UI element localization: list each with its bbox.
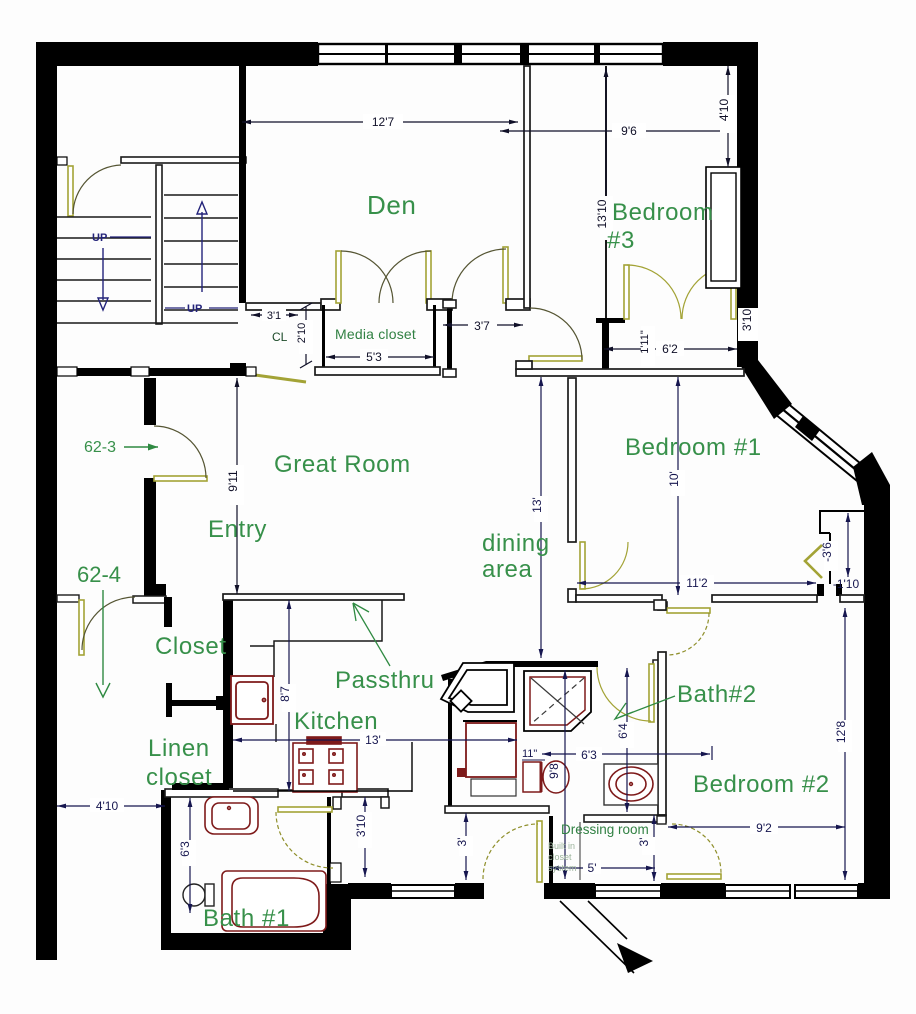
svg-text:12'8: 12'8 — [834, 721, 848, 744]
svg-text:10': 10' — [667, 471, 681, 487]
svg-text:Den: Den — [367, 190, 417, 220]
svg-text:6'3: 6'3 — [178, 841, 192, 857]
svg-text:Dressing room: Dressing room — [561, 822, 649, 837]
svg-text:3'10: 3'10 — [740, 309, 754, 332]
svg-text:closet: closet — [548, 852, 572, 862]
svg-text:Kitchen: Kitchen — [294, 708, 378, 735]
svg-text:Linen: Linen — [148, 735, 210, 762]
svg-text:3': 3' — [637, 838, 651, 847]
svg-text:Media closet: Media closet — [335, 326, 416, 342]
svg-text:CL: CL — [272, 330, 288, 344]
svg-text:Passthru: Passthru — [335, 667, 435, 694]
svg-text:5': 5' — [588, 861, 597, 875]
svg-text:9'2: 9'2 — [756, 821, 772, 835]
svg-text:Bedroom #2: Bedroom #2 — [693, 771, 830, 798]
svg-text:system: system — [548, 863, 577, 873]
svg-text:-3'6: -3'6 — [820, 542, 834, 562]
svg-text:6'3: 6'3 — [581, 748, 597, 762]
svg-text:UP: UP — [92, 232, 107, 244]
svg-text:13': 13' — [530, 497, 544, 513]
svg-text:6'2: 6'2 — [662, 342, 678, 356]
svg-text:closet: closet — [146, 764, 212, 791]
svg-text:#3: #3 — [607, 227, 635, 254]
svg-text:Great Room: Great Room — [274, 451, 411, 478]
svg-text:4'10: 4'10 — [717, 99, 731, 122]
svg-text:62-4: 62-4 — [77, 562, 121, 587]
svg-text:Built in: Built in — [548, 841, 575, 851]
svg-text:Bedroom: Bedroom — [612, 199, 714, 226]
svg-text:Entry: Entry — [208, 516, 267, 543]
svg-text:1'11": 1'11" — [639, 330, 651, 354]
svg-text:Closet: Closet — [155, 633, 227, 660]
svg-text:6'4: 6'4 — [616, 723, 630, 739]
svg-text:11'2: 11'2 — [686, 576, 708, 590]
svg-text:13': 13' — [365, 733, 381, 747]
svg-text:62-3: 62-3 — [84, 439, 116, 456]
svg-text:9'8: 9'8 — [547, 763, 561, 779]
svg-text:4'10: 4'10 — [96, 799, 119, 813]
svg-text:Bedroom #1: Bedroom #1 — [625, 434, 762, 461]
svg-text:Bath #1: Bath #1 — [203, 905, 290, 932]
svg-text:UP: UP — [187, 303, 202, 315]
svg-text:dining: dining — [482, 530, 550, 557]
svg-text:-1'10: -1'10 — [833, 577, 860, 591]
svg-text:3'1: 3'1 — [267, 310, 281, 322]
svg-text:9'11: 9'11 — [226, 470, 240, 492]
svg-text:9'6: 9'6 — [621, 124, 637, 138]
svg-text:11": 11" — [522, 748, 537, 760]
svg-text:3'7: 3'7 — [474, 319, 490, 333]
svg-text:2'10: 2'10 — [296, 323, 308, 343]
svg-text:3'10: 3'10 — [354, 815, 368, 838]
svg-text:3': 3' — [455, 838, 469, 847]
svg-text:area: area — [482, 556, 532, 583]
svg-text:8'7: 8'7 — [278, 686, 292, 702]
svg-text:12'7: 12'7 — [372, 115, 395, 129]
svg-text:Bath#2: Bath#2 — [677, 681, 757, 708]
svg-text:13'10: 13'10 — [595, 199, 609, 228]
svg-text:5'3: 5'3 — [366, 350, 382, 364]
